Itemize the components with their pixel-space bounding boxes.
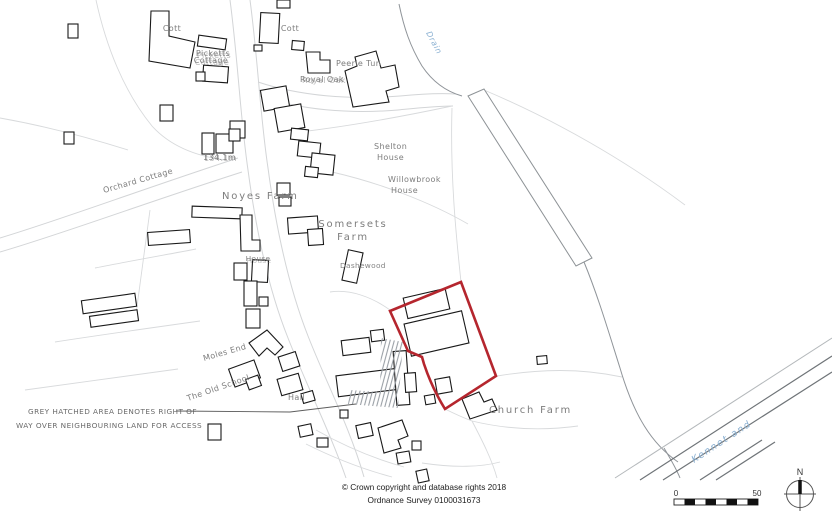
scale-bar-segment xyxy=(685,499,696,505)
building xyxy=(424,394,435,405)
label-cott-west: Cott xyxy=(163,24,181,33)
label-picketts2: Cottage xyxy=(194,56,228,65)
label-shelton-1: Shelton xyxy=(374,142,407,151)
building xyxy=(249,330,283,356)
label-noyes-farm: Noyes Farm xyxy=(222,191,299,202)
building xyxy=(435,377,452,394)
scale-start-label: 0 xyxy=(674,489,679,498)
north-label: N xyxy=(797,467,804,477)
label-old-school: The Old School xyxy=(185,373,251,403)
building xyxy=(240,215,260,251)
parcel-line xyxy=(472,421,497,478)
building xyxy=(89,310,138,328)
scale-bar-segment xyxy=(727,499,738,505)
parcel-line xyxy=(330,291,390,310)
building xyxy=(234,263,247,280)
copyright-note: © Crown copyright and database rights 20… xyxy=(342,482,507,505)
building xyxy=(68,24,78,38)
annotation-line-1: GREY HATCHED AREA DENOTES RIGHT OF xyxy=(28,407,197,416)
map-svg: Cott Cott Picketts Picketts Cottage Cott… xyxy=(0,0,832,520)
building xyxy=(412,441,421,450)
canal-line xyxy=(716,442,775,480)
building xyxy=(292,40,305,50)
building xyxy=(229,129,240,141)
building xyxy=(356,423,373,439)
building xyxy=(259,297,268,306)
parcel-line xyxy=(422,462,500,466)
building xyxy=(278,352,300,372)
building xyxy=(254,45,262,51)
label-peerle-tun: Peerle Tun xyxy=(336,59,381,68)
building xyxy=(404,373,416,393)
building xyxy=(192,206,242,219)
building xyxy=(317,438,328,447)
drain-line xyxy=(399,4,462,96)
building xyxy=(64,132,74,144)
building xyxy=(244,281,257,306)
building xyxy=(274,104,305,132)
building xyxy=(208,424,221,440)
annotation-leader-line xyxy=(176,404,356,412)
building xyxy=(196,72,205,81)
copyright-line-2: Ordnance Survey 0100031673 xyxy=(367,495,480,505)
building xyxy=(416,469,429,483)
label-somersets-1: Somersets xyxy=(318,219,387,230)
building xyxy=(290,128,308,141)
building xyxy=(396,451,411,464)
label-drain: Drain xyxy=(424,30,444,56)
road-line xyxy=(0,158,238,238)
map-page: Cott Cott Picketts Picketts Cottage Cott… xyxy=(0,0,832,520)
parcel-line xyxy=(497,371,622,378)
building xyxy=(202,65,228,83)
label-shelton-2: House xyxy=(377,153,404,162)
track-line xyxy=(584,262,678,462)
label-dashewood: Dashewood xyxy=(340,261,386,270)
scale-end-label: 50 xyxy=(753,489,762,498)
parcel-line xyxy=(452,108,461,282)
label-somersets-2: Farm xyxy=(337,232,369,243)
north-arrow: N xyxy=(784,467,816,511)
parcel-line xyxy=(136,210,150,314)
label-willowbrook-1: Willowbrook xyxy=(388,175,441,184)
label-moles-end: Moles End xyxy=(202,342,247,363)
label-royal-oak: Royal Oak xyxy=(300,75,344,84)
copyright-line-1: © Crown copyright and database rights 20… xyxy=(342,482,507,492)
parcel-line xyxy=(472,421,578,429)
label-church-farm: Church Farm xyxy=(489,405,572,416)
building xyxy=(306,52,330,73)
label-house: House xyxy=(246,254,271,263)
building xyxy=(340,410,348,418)
label-spot-height: 134.1m xyxy=(203,153,236,162)
building xyxy=(277,0,290,8)
building xyxy=(197,35,226,50)
water-layer xyxy=(399,4,832,480)
label-willowbrook-2: House xyxy=(391,186,418,195)
parcel-line xyxy=(306,444,392,477)
scale-bar: 0 50 xyxy=(674,489,762,505)
parcel-line xyxy=(55,321,200,342)
building xyxy=(246,309,260,328)
scale-bar-segment xyxy=(748,499,759,505)
canal-line xyxy=(615,338,832,478)
building xyxy=(378,420,408,453)
building xyxy=(148,230,191,246)
canal-line xyxy=(640,356,832,480)
building xyxy=(537,356,548,365)
building xyxy=(202,133,214,154)
label-cott-east: Cott xyxy=(281,24,299,33)
parcel-line xyxy=(95,249,196,268)
label-orchard-cottage: Orchard Cottage xyxy=(102,166,174,195)
building xyxy=(341,337,371,355)
tree-strip xyxy=(468,89,592,266)
parcel-line xyxy=(25,369,178,390)
building xyxy=(298,424,313,437)
building xyxy=(305,166,319,177)
scale-bar-segment xyxy=(706,499,717,505)
label-hall: Hall xyxy=(288,393,305,402)
building xyxy=(149,11,195,68)
building xyxy=(259,13,280,44)
building xyxy=(160,105,173,121)
annotation-line-2: WAY OVER NEIGHBOURING LAND FOR ACCESS xyxy=(16,421,202,430)
building xyxy=(307,228,323,245)
